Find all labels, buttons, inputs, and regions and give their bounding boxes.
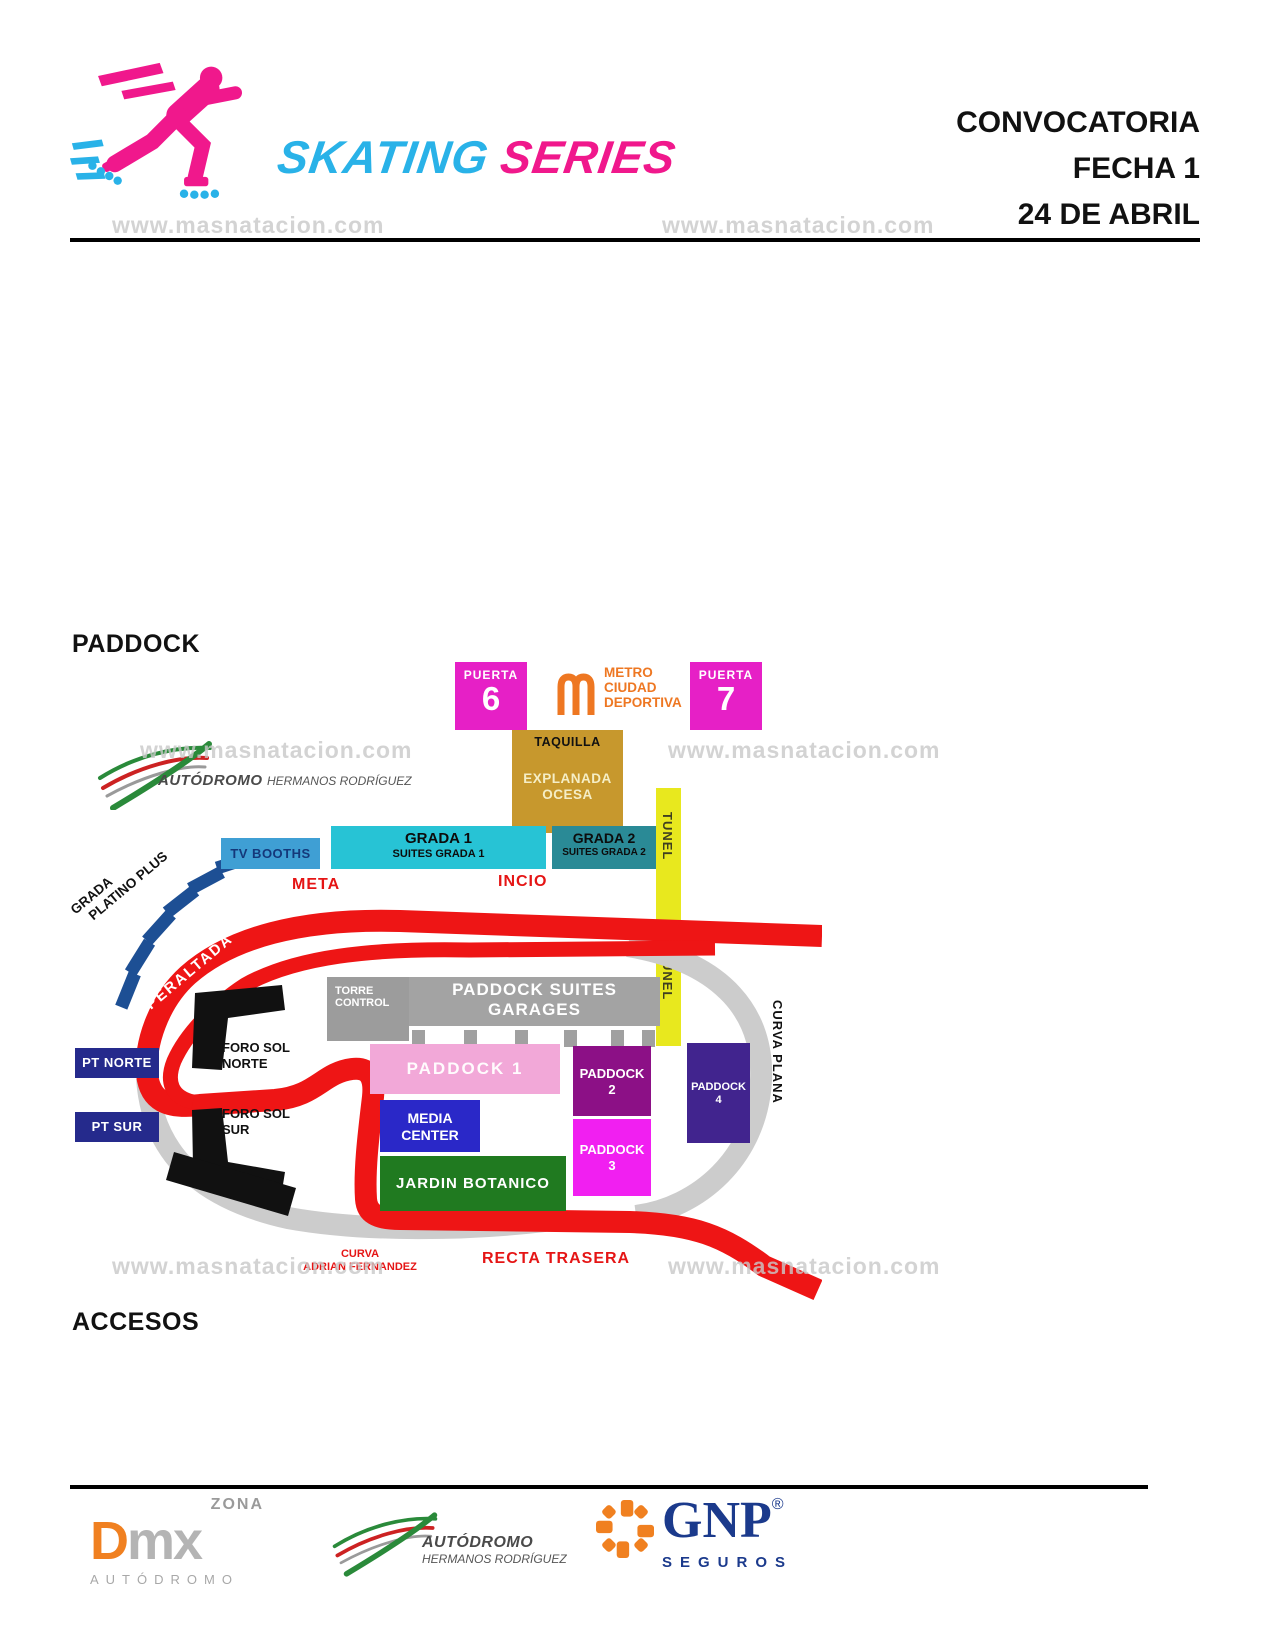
title-line-convocatoria: CONVOCATORIA [956, 100, 1200, 146]
explanada-line1: EXPLANADA [512, 771, 623, 787]
metro-line1: METRO [604, 665, 682, 680]
curva-plana-label: CURVA PLANA [770, 1000, 785, 1104]
paddock3-line1: PADDOCK [573, 1142, 651, 1157]
foro-sol-sur-label: FORO SOL SUR [222, 1106, 290, 1138]
autodromo-footer-name: AUTÓDROMO [422, 1534, 567, 1552]
autodromo-footer-tagline: HERMANOS RODRÍGUEZ [422, 1552, 567, 1566]
garage-marker [611, 1030, 624, 1047]
taquilla-label: TAQUILLA [512, 735, 623, 749]
gnp-name: GNP [662, 1492, 772, 1549]
document-title: CONVOCATORIA FECHA 1 24 DE ABRIL [956, 100, 1200, 238]
tv-booths-block: TV BOOTHS [221, 838, 320, 869]
watermark: www.masnatacion.com [140, 737, 413, 764]
grada2-block: GRADA 2 SUITES GRADA 2 [552, 826, 656, 869]
torre-line1: TORRE [335, 985, 409, 997]
paddock3-line2: 3 [573, 1158, 651, 1173]
pt-norte-block: PT NORTE [75, 1048, 159, 1078]
media-center-line2: CENTER [380, 1127, 480, 1143]
gate-puerta-7: PUERTA 7 [690, 662, 762, 730]
watermark: www.masnatacion.com [112, 212, 385, 239]
metro-line3: DEPORTIVA [604, 695, 682, 710]
foro-norte-line2: NORTE [222, 1056, 290, 1072]
grada1-title: GRADA 1 [331, 830, 546, 847]
foro-sol-norte-label: FORO SOL NORTE [222, 1040, 290, 1072]
grada2-subtitle: SUITES GRADA 2 [552, 847, 656, 858]
garages-line1: PADDOCK SUITES [409, 980, 660, 1000]
torre-line2: CONTROL [335, 997, 409, 1009]
meta-label: META [292, 876, 340, 894]
gate-number: 6 [455, 682, 527, 716]
paddock2-line1: PADDOCK [573, 1066, 651, 1081]
media-center-block: MEDIA CENTER [380, 1100, 480, 1152]
pt-sur-block: PT SUR [75, 1112, 159, 1142]
gnp-pinwheel-icon [596, 1500, 654, 1558]
paddock-heading: PADDOCK [72, 630, 200, 659]
metro-icon [556, 668, 596, 716]
skater-logo-icon [70, 48, 285, 218]
dmx-letter-d: D [90, 1511, 127, 1571]
torre-control-block: TORRE CONTROL [327, 977, 409, 1041]
brand-word-series: SERIES [497, 130, 679, 184]
metro-station-label: METRO CIUDAD DEPORTIVA [604, 665, 682, 710]
brand-wordmark: SKATING SERIES [278, 130, 676, 184]
paddock2-line2: 2 [573, 1082, 651, 1097]
paddock3-block: PADDOCK 3 [573, 1119, 651, 1196]
document-page: SKATING SERIES CONVOCATORIA FECHA 1 24 D… [0, 0, 1275, 1650]
gnp-seguros-label: SEGUROS [662, 1552, 793, 1571]
paddock4-line1: PADDOCK [687, 1081, 750, 1093]
brand-word-skating: SKATING [274, 130, 492, 184]
dmx-logo: ZONA Dmx AUTÓDROMO [90, 1496, 280, 1587]
garage-marker [564, 1030, 577, 1047]
grada1-block: GRADA 1 SUITES GRADA 1 [331, 826, 546, 869]
watermark: www.masnatacion.com [112, 1253, 385, 1280]
gnp-wordmark: GNP® SEGUROS [662, 1496, 793, 1571]
title-line-date: 24 DE ABRIL [956, 192, 1200, 238]
paddock4-block: PADDOCK 4 [687, 1043, 750, 1143]
garage-marker [642, 1030, 655, 1047]
foro-sur-line2: SUR [222, 1122, 290, 1138]
explanada-line2: OCESA [512, 787, 623, 803]
paddock1-block: PADDOCK 1 [370, 1044, 560, 1094]
paddock-suites-garages-block: PADDOCK SUITES GARAGES [409, 977, 660, 1026]
title-line-fecha: FECHA 1 [956, 146, 1200, 192]
foro-sur-line1: FORO SOL [222, 1106, 290, 1122]
media-center-line1: MEDIA [380, 1110, 480, 1126]
gnp-registered-mark: ® [772, 1496, 784, 1513]
taquilla-explanada-block: TAQUILLA EXPLANADA OCESA [512, 730, 623, 833]
incio-label: INCIO [498, 873, 547, 891]
autodromo-footer-wordmark: AUTÓDROMO HERMANOS RODRÍGUEZ [422, 1534, 567, 1566]
watermark: www.masnatacion.com [662, 212, 935, 239]
autodromo-map-wordmark: AUTÓDROMO HERMANOS RODRÍGUEZ [158, 772, 412, 790]
dmx-autodromo-label: AUTÓDROMO [90, 1572, 280, 1587]
metro-line2: CIUDAD [604, 680, 682, 695]
watermark: www.masnatacion.com [668, 1253, 941, 1280]
footer-divider [70, 1485, 1148, 1489]
dmx-wordmark: Dmx [90, 1514, 280, 1568]
grada2-title: GRADA 2 [552, 830, 656, 846]
paddock4-line2: 4 [687, 1094, 750, 1106]
gate-puerta-6: PUERTA 6 [455, 662, 527, 730]
foro-norte-line1: FORO SOL [222, 1040, 290, 1056]
jardin-botanico-block: JARDIN BOTANICO [380, 1156, 566, 1211]
autodromo-name: AUTÓDROMO [158, 772, 263, 789]
header-divider [70, 238, 1200, 242]
paddock2-block: PADDOCK 2 [573, 1046, 651, 1116]
grada1-subtitle: SUITES GRADA 1 [331, 848, 546, 860]
recta-trasera-label: RECTA TRASERA [482, 1250, 630, 1268]
dmx-letters-mx: mx [127, 1511, 201, 1571]
gate-number: 7 [690, 682, 762, 716]
accesos-heading: ACCESOS [72, 1308, 199, 1337]
garages-line2: GARAGES [409, 1000, 660, 1020]
watermark: www.masnatacion.com [668, 737, 941, 764]
autodromo-tagline: HERMANOS RODRÍGUEZ [267, 774, 412, 788]
